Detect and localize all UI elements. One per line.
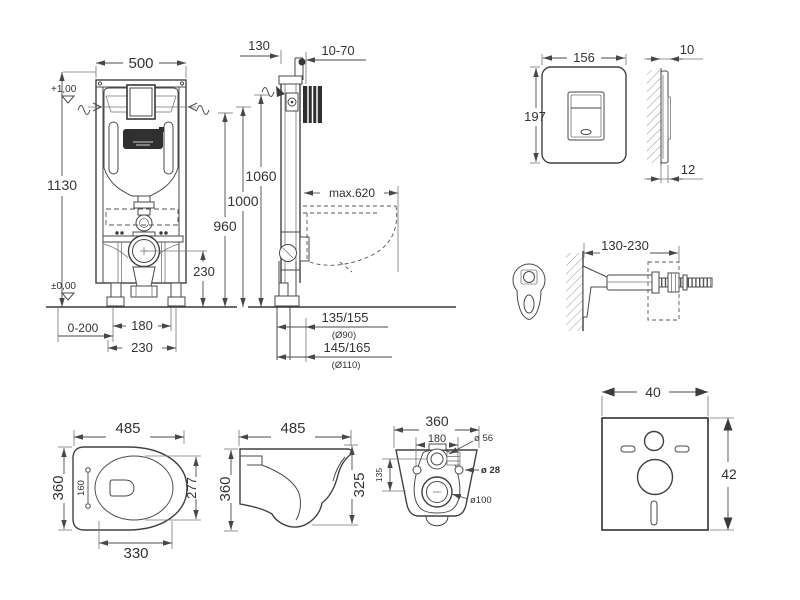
wall-bracket-view: 130-230	[513, 238, 712, 331]
dim-frame-height: 1130	[47, 177, 77, 193]
bolt-hole-right	[455, 466, 463, 474]
dim-plate-thickness-bottom: 12	[681, 162, 695, 177]
outlet-bend-face	[300, 237, 309, 261]
dim-plate-width: 156	[573, 50, 595, 65]
dim-height-960: 960	[213, 218, 237, 234]
level-mark-top	[62, 96, 74, 103]
dim-outlet-height: 230	[193, 264, 215, 279]
technical-drawing-canvas: GROHE	[0, 0, 800, 600]
dim-top-length: 485	[115, 420, 140, 437]
flush-access-box	[127, 85, 155, 119]
toilet-side-view: 485 360 325	[217, 420, 368, 531]
supply-connection-point	[299, 59, 306, 66]
drawing-svg: GROHE	[0, 0, 800, 600]
dim-rear-width: 360	[425, 413, 449, 429]
dim-bracket-range: 130-230	[601, 238, 649, 253]
level-top-label: +1,00	[51, 84, 77, 95]
dim-max-depth: max.620	[329, 186, 375, 200]
dim-frame-depth: 130	[248, 38, 270, 53]
dim-inlet-dia: ø 56	[474, 433, 493, 444]
sound-insulation-mat-view: 40 42	[602, 384, 737, 530]
dim-front-height: 325	[351, 472, 368, 497]
dim-top-width: 360	[50, 475, 67, 500]
dim-bolt-dia: ø 28	[481, 465, 500, 476]
bracket-arm	[607, 275, 654, 290]
dim-height-1060: 1060	[245, 168, 276, 184]
dim-drain-row2-dia: (Ø110)	[332, 360, 361, 371]
level-floor-label: ±0,00	[51, 281, 76, 292]
seat-outline	[73, 447, 187, 530]
dim-bolt-gauge: 160	[76, 480, 87, 496]
grohe-logo-badge: GROHE	[123, 127, 164, 149]
flush-plate-front-view: 156 197	[524, 50, 626, 163]
inlet-hole	[427, 449, 447, 469]
toilet-top-view: 160 485 360 277 330	[50, 420, 201, 562]
dim-side-length: 485	[280, 420, 305, 437]
dim-feet-range: 0-200	[68, 321, 99, 335]
dim-plate-thickness-top: 10	[680, 42, 694, 57]
dim-mat-height: 42	[721, 466, 737, 482]
rod-nut	[668, 273, 679, 292]
dim-mat-width: 40	[645, 384, 661, 400]
wall-section-block	[303, 86, 322, 123]
dim-outlet-dia: ø100	[470, 495, 492, 506]
frame-side-view: 130 10-70 960 1000 1060 max.620 135/155 …	[213, 38, 456, 371]
dim-wall-distance: 10-70	[321, 43, 354, 58]
keyhole-fixing-piece	[513, 264, 545, 320]
grohe-logo-text: GROHE	[130, 133, 156, 140]
level-mark-floor	[62, 293, 74, 300]
dim-side-height: 360	[217, 476, 234, 501]
water-flow-arrow-right	[189, 103, 209, 115]
wall-hatch-bracket	[566, 253, 583, 331]
dim-front-width: 330	[123, 545, 148, 562]
flush-plate-side-view: 10 12	[644, 42, 703, 183]
toilet-rear-view: 360 180 ø 56 ø 28 ø100 135	[374, 413, 500, 526]
bracket-wedge	[583, 266, 607, 317]
flush-button	[568, 92, 604, 140]
dim-rod-spacing: 180	[131, 318, 153, 333]
dim-base-width: 230	[131, 340, 153, 355]
mat-outline	[602, 418, 708, 530]
dim-drain-row1: 135/155	[322, 310, 369, 325]
dim-frame-width: 500	[128, 55, 153, 72]
wall-hatch	[647, 70, 661, 163]
bowl-dashed-outline	[303, 206, 397, 272]
bolt-hole-left	[413, 466, 421, 474]
dim-vertical-offset: 135	[374, 468, 384, 482]
frame-front-view: GROHE	[46, 55, 237, 355]
plate-side-profile	[661, 71, 668, 163]
dim-rear-bolt-spacing: 180	[428, 433, 446, 445]
dim-plate-height: 197	[524, 109, 546, 124]
dim-seat-length: 277	[184, 477, 199, 499]
dim-drain-row2: 145/165	[324, 340, 371, 355]
dim-height-1000: 1000	[227, 193, 258, 209]
